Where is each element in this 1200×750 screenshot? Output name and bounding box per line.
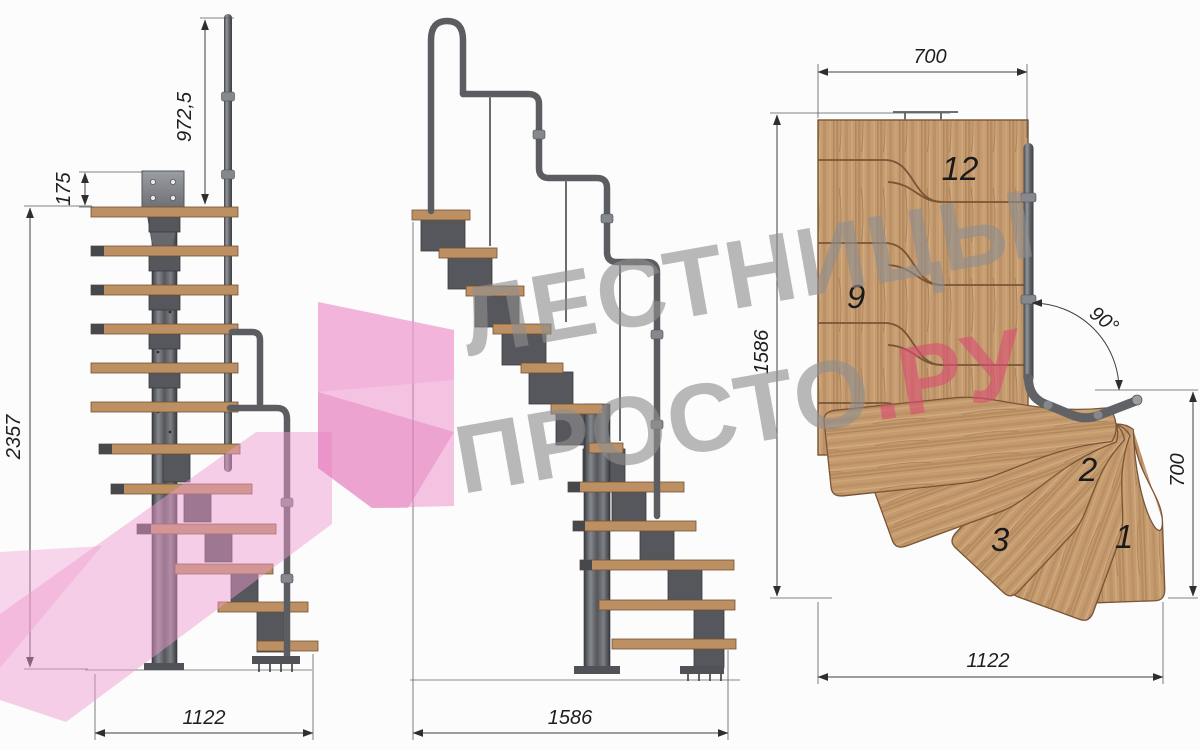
side-post-base bbox=[680, 666, 724, 674]
dim-label-plan-bottom-width: 1122 bbox=[966, 650, 1009, 672]
rail-sleeve bbox=[281, 574, 293, 583]
post-base-plate bbox=[252, 656, 300, 664]
rail-sleeve bbox=[222, 92, 235, 101]
dim-label-plan-top-width: 700 bbox=[913, 46, 946, 68]
dim-plan-bottom-width: 1122 bbox=[818, 602, 1163, 684]
tread-number-1: 1 bbox=[1115, 518, 1133, 555]
rail-sleeve bbox=[222, 170, 235, 179]
dim-label-side-length: 1586 bbox=[548, 707, 593, 729]
dim-label-rail-height: 972,5 bbox=[174, 91, 196, 142]
drawing-canvas: 972,5 175 2357 1122 bbox=[0, 0, 1200, 750]
rail-joint bbox=[1044, 401, 1053, 410]
dim-plate-depth: 175 bbox=[53, 171, 143, 207]
dim-label-total-height: 2357 bbox=[3, 414, 25, 460]
tread-number-3: 3 bbox=[991, 521, 1010, 558]
side-column-base bbox=[574, 666, 620, 674]
rail-joint bbox=[1094, 411, 1103, 420]
column-base-plate bbox=[144, 663, 184, 670]
dim-label-front-width: 1122 bbox=[182, 707, 225, 729]
base-bolts bbox=[259, 664, 292, 672]
dim-label-plate-depth: 175 bbox=[53, 171, 75, 205]
dim-label-plan-right-depth: 700 bbox=[1167, 453, 1189, 486]
staircase-technical-drawing: 972,5 175 2357 1122 bbox=[0, 0, 1200, 750]
side-rail-loop bbox=[431, 21, 463, 211]
dim-label-turn-angle: 90° bbox=[1085, 302, 1122, 338]
rail-sleeve bbox=[601, 214, 613, 223]
rail-end-cap bbox=[1132, 395, 1142, 405]
rail-sleeve bbox=[533, 130, 545, 139]
dim-plan-right-depth: 700 bbox=[1167, 392, 1198, 598]
tread-number-2: 2 bbox=[1078, 451, 1097, 488]
dim-turn-angle: 90° bbox=[1032, 302, 1198, 390]
